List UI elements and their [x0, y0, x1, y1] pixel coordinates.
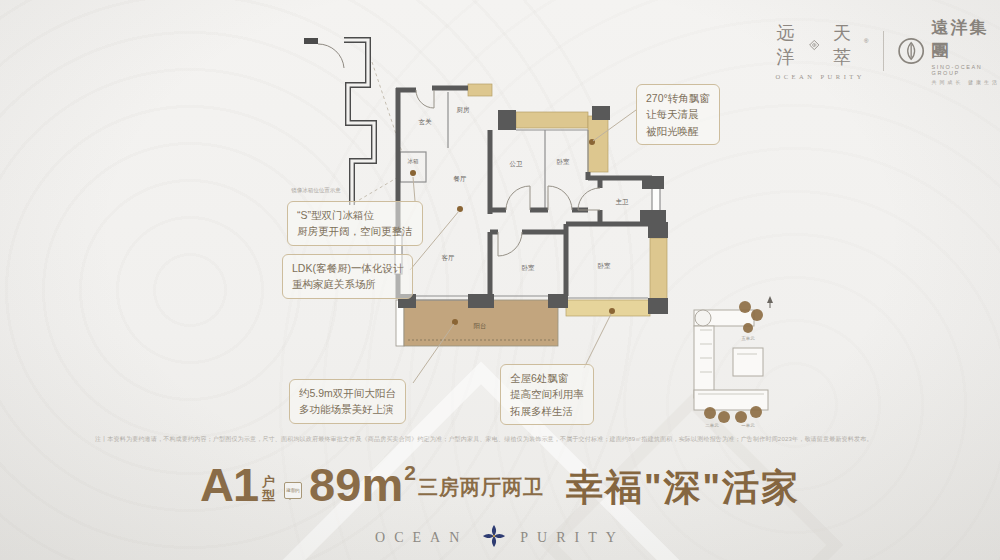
group-name-cn: 遠洋集團 — [932, 16, 1000, 62]
site-label-unit5: 五单元 — [741, 335, 755, 341]
brand-reg-mark: ® — [864, 38, 870, 44]
callout-line: 重构家庭关系场所 — [292, 276, 403, 292]
callout-line: “S”型双门冰箱位 — [297, 207, 413, 223]
callout-line: 提高空间利用率 — [510, 386, 584, 402]
callout-line: 约5.9m双开间大阳台 — [299, 385, 396, 401]
callout-line: 270°转角飘窗 — [646, 90, 710, 106]
callout-line: 拓展多样生活 — [510, 403, 584, 419]
fridge-detail-diagram: 镜像冰箱位位置示意 — [290, 38, 402, 205]
group-name-en: SINO-OCEAN GROUP — [932, 64, 1000, 76]
brand-diamond-icon — [807, 36, 822, 54]
floor-plan: 玄关 厨房 冰箱 公卫 卧室 主卫 餐厅 客厅 卧室 卧室 阳台 — [395, 84, 668, 346]
callout-line: 全屋6处飘窗 — [510, 370, 584, 386]
blue-diamond-emblem-icon — [482, 524, 506, 548]
site-label-unit1: 一单元 — [741, 422, 755, 428]
ocean-purity-logo: 远洋 天萃 ® OCEAN PURITY — [770, 21, 870, 80]
area-value: 89m — [309, 464, 403, 505]
callout-corner-window: 270°转角飘窗 让每天清晨 被阳光唤醒 — [636, 84, 720, 145]
unit-title: A1 户 型 建面约 89m 2 三房两厅两卫 幸福"深"活家 — [0, 464, 1000, 505]
room-label-fridge: 冰箱 — [408, 158, 420, 164]
callout-balcony: 约5.9m双开间大阳台 多功能场景美好上演 — [289, 379, 406, 424]
room-label-balcony: 阳台 — [474, 322, 487, 330]
detail-door-stub — [304, 38, 318, 44]
callout-fridge: “S”型双门冰箱位 厨房更开阔，空间更整洁 — [287, 201, 423, 246]
site-label-unit2: 二单元 — [705, 422, 719, 428]
area-superscript: 2 — [404, 461, 416, 485]
bottom-logo-purity: PURITY — [520, 530, 625, 546]
brand-cn-left: 远洋 — [770, 21, 802, 69]
unit-type-label-bottom: 型 — [262, 489, 275, 503]
room-label-bedroom-right: 卧室 — [598, 262, 612, 269]
brand-header: 远洋 天萃 ® OCEAN PURITY 遠洋集團 SINO-OCEAN GRO… — [770, 16, 1000, 85]
detail-door-arc — [318, 44, 344, 68]
callout-bay-windows: 全屋6处飘窗 提高空间利用率 拓展多样生活 — [500, 364, 594, 425]
callout-line: 被阳光唤醒 — [646, 123, 710, 139]
brand-cn-right: 天萃 — [827, 21, 859, 69]
area-badge: 建面约 — [284, 482, 302, 499]
header-divider — [883, 31, 884, 71]
detail-wall-inner — [344, 40, 374, 205]
room-label-bedroom-mid: 卧室 — [522, 264, 536, 271]
detail-caption: 镜像冰箱位位置示意 — [290, 187, 341, 194]
sino-ocean-logo: 遠洋集團 SINO-OCEAN GROUP 共同成长 健康生活 — [897, 16, 1000, 85]
bottom-logo-ocean: OCEAN — [375, 530, 468, 546]
callout-ldk: LDK(客餐厨)一体化设计 重构家庭关系场所 — [282, 254, 413, 299]
unit-type-code: A1 — [200, 464, 258, 505]
slogan: 幸福"深"活家 — [566, 470, 800, 505]
room-label-entry: 玄关 — [419, 118, 433, 126]
callout-line: LDK(客餐厨)一体化设计 — [292, 260, 403, 276]
callout-line: 让每天清晨 — [646, 106, 710, 122]
brand-en: OCEAN PURITY — [770, 73, 870, 80]
room-label-master-bath: 主卫 — [616, 198, 630, 205]
room-label-bedroom-top: 卧室 — [557, 158, 571, 165]
bottom-logotype: OCEAN PURITY — [0, 527, 1000, 548]
poster: 镜像冰箱位位置示意 — [0, 0, 1000, 560]
north-arrow-icon — [767, 296, 773, 308]
room-label-living: 客厅 — [442, 254, 456, 262]
disclaimer-text: 注丨本资料为要约邀请，不构成要约内容；户型图仅为示意，尺寸、面积均以政府最终审批… — [95, 435, 907, 444]
group-tagline: 共同成长 健康生活 — [932, 79, 1000, 85]
room-label-guest-bath: 公卫 — [510, 160, 524, 167]
sino-ocean-emblem-icon — [897, 34, 925, 68]
callout-line: 多功能场景美好上演 — [299, 401, 396, 417]
room-label-kitchen: 厨房 — [457, 106, 471, 113]
callout-line: 厨房更开阔，空间更整洁 — [297, 223, 413, 239]
rooms-description: 三房两厅两卫 — [418, 474, 544, 501]
unit-type-label: 户 型 — [262, 475, 275, 502]
unit-type-label-top: 户 — [262, 475, 275, 489]
site-plan: 五单元 二单元 一单元 — [694, 296, 773, 428]
room-label-dining: 餐厅 — [454, 175, 468, 182]
